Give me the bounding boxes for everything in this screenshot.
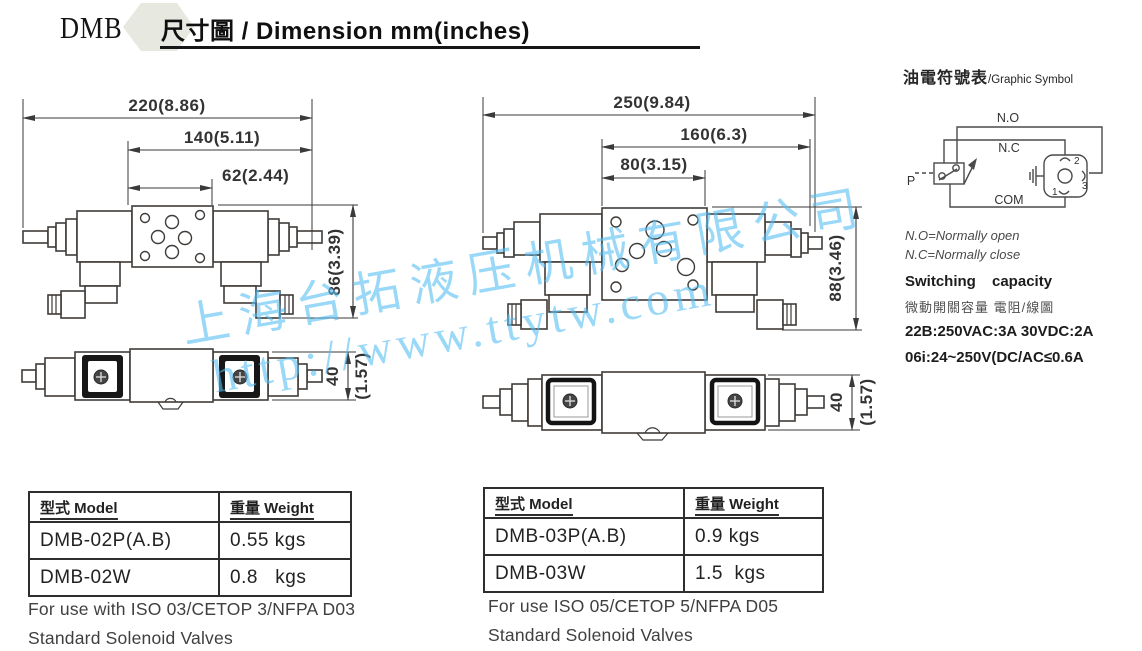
switching-capacity-heading: Switching capacity <box>905 273 1142 290</box>
left-valve-top-view <box>23 206 322 318</box>
label-p: P <box>907 174 915 188</box>
column-header-model: 型式 Model <box>484 488 684 518</box>
dim-right-mid: 160(6.3) <box>680 125 747 144</box>
spec-table-dmb03: 型式 Model 重量 Weight DMB-03P(A.B) 0.9 kgs … <box>483 487 824 593</box>
model-cell: DMB-03P(A.B) <box>484 518 684 555</box>
switching-capacity-cjk: 微動開關容量 電阻/線圖 <box>905 297 1142 316</box>
dim-right-overall: 250(9.84) <box>613 93 690 112</box>
dim-left-side-mm: 40 <box>323 366 342 386</box>
actuator-arrow-icon <box>968 158 977 170</box>
caption-right-line2: Standard Solenoid Valves <box>488 621 778 650</box>
weight-cell: 0.55 kgs <box>219 522 351 559</box>
column-header-weight: 重量 Weight <box>219 492 351 522</box>
label-no: N.O <box>997 111 1020 125</box>
note-normally-open: N.O=Normally open <box>905 226 1142 245</box>
table-row: DMB-02P(A.B) 0.55 kgs <box>29 522 351 559</box>
rating-line-1: 22B:250VAC:3A 30VDC:2A <box>905 323 1142 340</box>
dim-right-side-in: (1.57) <box>857 378 876 425</box>
graphic-symbol-circuit: N.O N.C P COM 2 3 1 <box>907 111 1102 207</box>
caption-left-line2: Standard Solenoid Valves <box>28 624 355 651</box>
caption-left: For use with ISO 03/CETOP 3/NFPA D03 Sta… <box>28 595 355 651</box>
column-header-model: 型式 Model <box>29 492 219 522</box>
model-cell: DMB-02P(A.B) <box>29 522 219 559</box>
dim-left-small: 62(2.44) <box>222 166 289 185</box>
dim-left-height: 86(3.39) <box>325 228 344 295</box>
dim-left-overall: 220(8.86) <box>128 96 205 115</box>
graphic-symbol-title-en: /Graphic Symbol <box>988 74 1073 86</box>
spec-table-dmb02: 型式 Model 重量 Weight DMB-02P(A.B) 0.55 kgs… <box>28 491 352 597</box>
table-row: DMB-03W 1.5 kgs <box>484 555 823 592</box>
graphic-symbol-title: 油電符號表/Graphic Symbol <box>903 64 1073 88</box>
dim-left-mid: 140(5.11) <box>184 128 260 147</box>
label-com: COM <box>994 193 1023 207</box>
rating-line-2: 06i:24~250V(DC/AC≤0.6A <box>905 349 1142 366</box>
dim-right-height: 88(3.46) <box>826 234 845 301</box>
weight-cell: 0.8 kgs <box>219 559 351 596</box>
graphic-symbol-title-cjk: 油電符號表 <box>903 70 988 87</box>
model-cell: DMB-02W <box>29 559 219 596</box>
caption-right-line1: For use ISO 05/CETOP 5/NFPA D05 <box>488 592 778 621</box>
note-normally-close: N.C=Normally close <box>905 245 1142 264</box>
dim-right-small: 80(3.15) <box>620 155 687 174</box>
label-nc: N.C <box>998 141 1020 155</box>
label-pin1: 1 <box>1052 187 1058 198</box>
table-row: DMB-02W 0.8 kgs <box>29 559 351 596</box>
right-valve-top-view <box>483 208 822 329</box>
catalog-page: DMB 尺寸圖 / Dimension mm(inches) <box>0 0 1142 651</box>
caption-left-line1: For use with ISO 03/CETOP 3/NFPA D03 <box>28 595 355 624</box>
switching-notes: N.O=Normally open N.C=Normally close Swi… <box>905 226 1142 366</box>
weight-cell: 1.5 kgs <box>684 555 823 592</box>
label-pin3: 3 <box>1082 181 1088 192</box>
weight-cell: 0.9 kgs <box>684 518 823 555</box>
label-pin2: 2 <box>1074 156 1080 167</box>
table-row: DMB-03P(A.B) 0.9 kgs <box>484 518 823 555</box>
dim-left-side-in: (1.57) <box>352 352 371 399</box>
column-header-weight: 重量 Weight <box>684 488 823 518</box>
dim-right-side-mm: 40 <box>827 392 846 412</box>
caption-right: For use ISO 05/CETOP 5/NFPA D05 Standard… <box>488 592 778 650</box>
model-cell: DMB-03W <box>484 555 684 592</box>
